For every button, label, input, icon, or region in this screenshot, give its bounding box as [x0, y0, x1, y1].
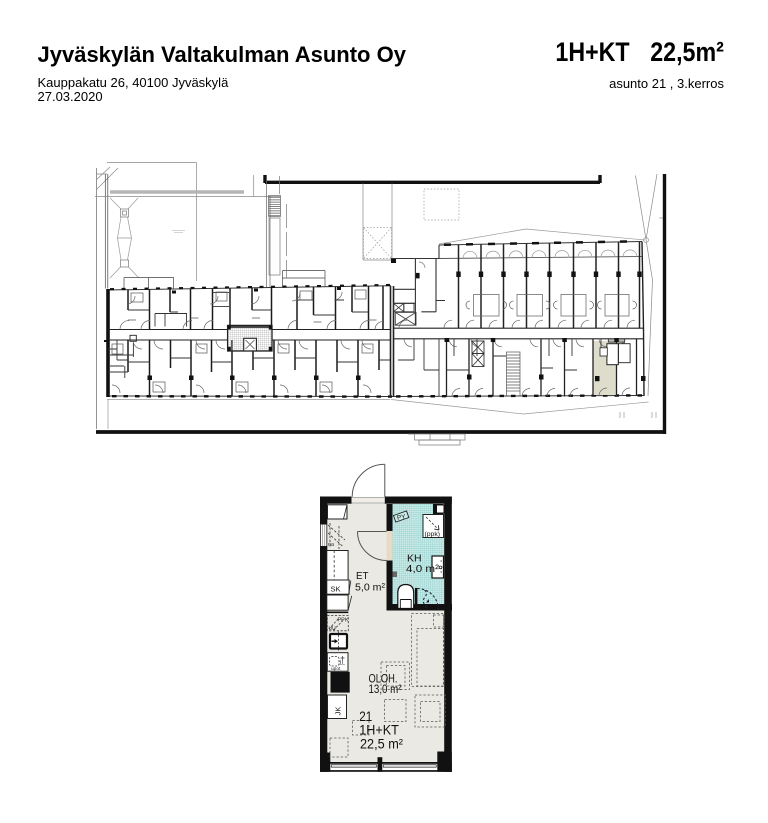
svg-text:upot: upot	[331, 666, 341, 672]
svg-text:ET: ET	[356, 571, 369, 582]
svg-text:1L: 1L	[339, 661, 345, 667]
svg-text:UU: UU	[329, 626, 337, 632]
svg-text:JK: JK	[334, 707, 343, 716]
svg-text:(ppk): (ppk)	[425, 531, 441, 538]
svg-text:SK: SK	[331, 585, 341, 594]
svg-text:5,0 m²: 5,0 m²	[355, 583, 386, 594]
svg-text:PPK: PPK	[338, 618, 349, 624]
svg-text:4,0 m²: 4,0 m²	[406, 564, 440, 575]
svg-text:13,0 m²: 13,0 m²	[369, 682, 402, 696]
svg-text:KH: KH	[407, 554, 422, 565]
svg-text:na: na	[328, 542, 335, 548]
svg-text:22,5 m²: 22,5 m²	[360, 735, 403, 751]
